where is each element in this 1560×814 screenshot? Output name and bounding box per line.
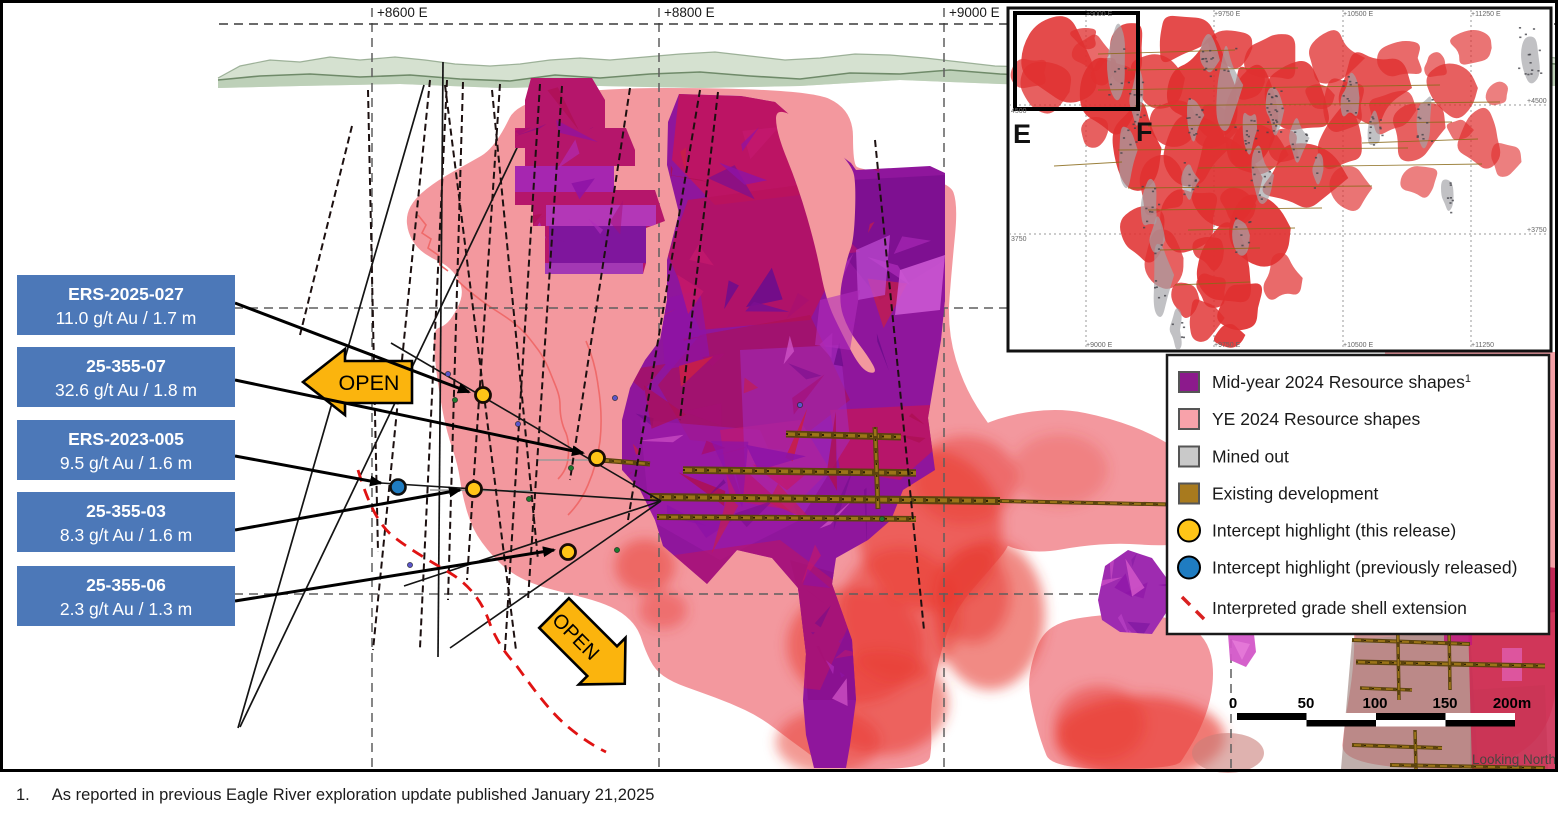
svg-text:25-355-06: 25-355-06 (86, 575, 166, 595)
svg-text:25-355-07: 25-355-07 (86, 356, 166, 376)
svg-text:9.5 g/t Au / 1.6 m: 9.5 g/t Au / 1.6 m (60, 453, 192, 473)
svg-text:Interpreted grade shell extens: Interpreted grade shell extension (1212, 598, 1467, 618)
svg-text:+9000 E: +9000 E (1086, 11, 1113, 18)
svg-text:Looking North: Looking North (1472, 752, 1556, 767)
svg-text:11.0 g/t Au / 1.7 m: 11.0 g/t Au / 1.7 m (56, 308, 197, 328)
svg-text:200m: 200m (1493, 695, 1531, 712)
svg-text:+8800 E: +8800 E (664, 5, 715, 20)
svg-text:100: 100 (1362, 695, 1387, 712)
svg-text:50: 50 (1298, 695, 1315, 712)
svg-text:ERS-2023-005: ERS-2023-005 (68, 429, 184, 449)
svg-text:3750: 3750 (1011, 236, 1027, 243)
svg-text:E: E (1013, 119, 1031, 149)
svg-text:ERS-2025-027: ERS-2025-027 (68, 284, 184, 304)
svg-text:32.6 g/t Au / 1.8 m: 32.6 g/t Au / 1.8 m (55, 380, 197, 400)
svg-text:+10500 E: +10500 E (1343, 342, 1373, 349)
svg-text:2.3 g/t Au / 1.3 m: 2.3 g/t Au / 1.3 m (60, 599, 192, 619)
svg-text:+4500: +4500 (1527, 98, 1547, 105)
svg-text:+9750 E: +9750 E (1214, 11, 1241, 18)
svg-text:+9750 E: +9750 E (1214, 342, 1241, 349)
svg-text:F: F (1136, 117, 1153, 147)
svg-text:+8600 E: +8600 E (377, 5, 428, 20)
svg-text:8.3 g/t Au / 1.6 m: 8.3 g/t Au / 1.6 m (60, 525, 192, 545)
svg-text:+11250: +11250 (1471, 342, 1494, 349)
svg-text:+3750: +3750 (1527, 227, 1547, 234)
svg-text:150: 150 (1432, 695, 1457, 712)
svg-text:+9000 E: +9000 E (949, 5, 1000, 20)
svg-text:+11250 E: +11250 E (1471, 11, 1501, 18)
svg-text:+10500 E: +10500 E (1343, 11, 1373, 18)
svg-text:OPEN: OPEN (339, 371, 400, 395)
svg-text:Mid-year 2024 Resource shapes1: Mid-year 2024 Resource shapes1 (1212, 372, 1471, 392)
svg-text:Intercept highlight (previous: Intercept highlight (previously released… (1212, 558, 1517, 578)
svg-text:Intercept highlight (this rel: Intercept highlight (this release) (1212, 521, 1456, 541)
svg-text:+9000 E: +9000 E (1086, 342, 1113, 349)
svg-text:25-355-03: 25-355-03 (86, 501, 166, 521)
svg-text:Existing development: Existing development (1212, 484, 1378, 504)
svg-text:Mined out: Mined out (1212, 447, 1289, 467)
svg-text:YE 2024 Resource shapes: YE 2024 Resource shapes (1212, 409, 1420, 429)
svg-text:0: 0 (1229, 695, 1237, 712)
svg-text:4500: 4500 (1011, 108, 1027, 115)
